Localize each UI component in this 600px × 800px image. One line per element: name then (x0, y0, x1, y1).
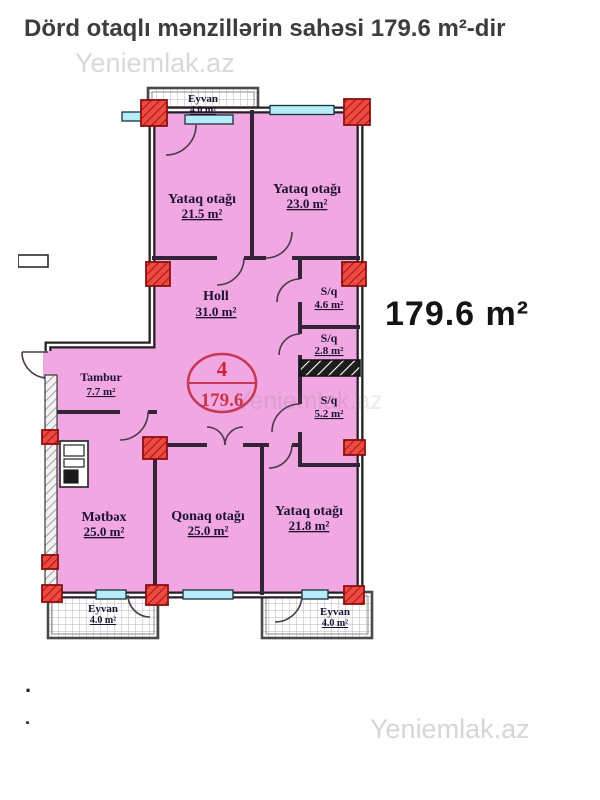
room-label: Holl (203, 289, 229, 304)
column (344, 99, 370, 125)
window-yataq3-bottom (302, 590, 328, 599)
room-label: Mətbəx (81, 510, 126, 525)
watermark-bottom: Yeniemlak.az (370, 714, 530, 745)
room-area: 7.7 m² (87, 386, 117, 398)
room-area: 4.0 m² (90, 615, 116, 626)
room-label: Eyvan (188, 93, 218, 105)
room-label: S/q (321, 331, 338, 345)
window-qonaq-bottom (183, 590, 233, 599)
column (342, 262, 366, 286)
watermark-top: Yeniemlak.az (75, 48, 235, 79)
listing-page: Dörd otaqlı mənzillərin sahəsi 179.6 m²-… (0, 0, 600, 800)
room-area: 21.5 m² (182, 206, 223, 221)
room-label: Eyvan (88, 603, 118, 615)
room-label: Yataq otağı (275, 504, 343, 519)
room-label: Yataq otağı (273, 182, 341, 197)
room-label: S/q (321, 284, 338, 298)
room-area: 4.0 m² (322, 618, 348, 629)
badge-room-count: 4 (217, 357, 228, 381)
room-label: Yataq otağı (168, 192, 236, 207)
column (146, 262, 170, 286)
column (143, 437, 167, 459)
room-area: 25.0 m² (188, 523, 229, 538)
room-area: 2.8 m² (315, 345, 345, 357)
page-title: Dörd otaqlı mənzillərin sahəsi 179.6 m²-… (24, 14, 568, 44)
column (141, 100, 167, 126)
room-area: 25.0 m² (84, 524, 125, 539)
column (344, 586, 364, 604)
window-bedroom2-top (270, 106, 334, 115)
window-metbex-bottom (96, 590, 126, 599)
total-area-text: 179.6 m² (385, 295, 529, 334)
column (146, 585, 168, 605)
room-area: 21.8 m² (289, 518, 330, 533)
window-eyvan-top (185, 115, 233, 124)
room-label: Eyvan (320, 606, 350, 618)
watermark-middle: Yeniemlak.az (235, 387, 383, 416)
room-area: 4.6 m² (315, 299, 345, 311)
list-dot: . (25, 708, 30, 729)
column (42, 430, 58, 444)
list-dot: . (25, 672, 31, 698)
column (344, 440, 365, 455)
neighbour-wall-stub (18, 255, 48, 267)
room-label: Tambur (80, 370, 122, 384)
room-label: Qonaq otağı (171, 509, 245, 524)
column (42, 585, 62, 602)
column (42, 555, 58, 569)
floor-plan: 4 179.6 Eyvan 4.0 m² Yataq otağı 21.5 m²… (18, 85, 380, 645)
kitchen-cabinet (60, 441, 88, 487)
room-area: 23.0 m² (287, 196, 328, 211)
vent-shaft (300, 360, 360, 376)
room-area: 31.0 m² (196, 304, 237, 319)
room-area: 4.0 m² (190, 105, 216, 116)
